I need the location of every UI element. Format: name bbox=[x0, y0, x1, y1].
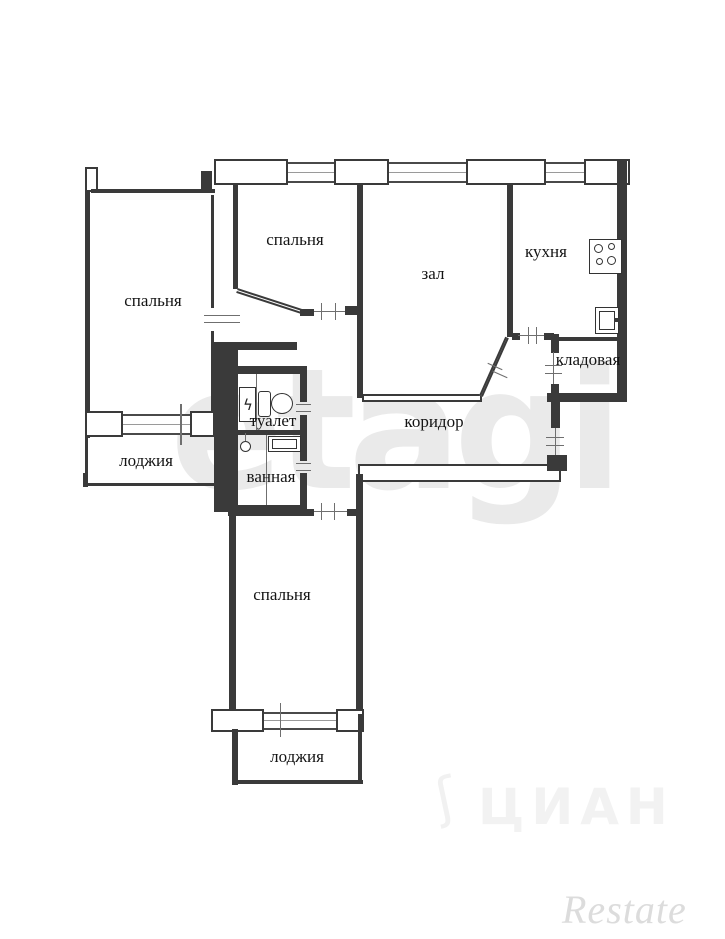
wall bbox=[356, 474, 363, 714]
entrance-door-sill bbox=[555, 428, 556, 458]
wall bbox=[232, 729, 238, 785]
wall bbox=[547, 455, 567, 471]
door-tick bbox=[536, 327, 537, 344]
wall-pier bbox=[85, 411, 123, 437]
room-label-bedroom-top-left: спальня bbox=[124, 291, 182, 311]
window bbox=[389, 162, 466, 183]
door-tick bbox=[321, 303, 322, 320]
room-label-kitchen: кухня bbox=[525, 242, 567, 262]
washbasin-icon bbox=[240, 441, 251, 452]
wall bbox=[300, 309, 314, 316]
stove-burner-icon bbox=[607, 256, 616, 265]
wall bbox=[556, 337, 618, 341]
door-opening bbox=[204, 322, 240, 323]
window bbox=[288, 162, 334, 183]
door-tick bbox=[335, 303, 336, 320]
room-label-loggia-left: лоджия bbox=[119, 451, 173, 471]
wall-pier bbox=[466, 159, 546, 185]
bathtub-icon bbox=[272, 439, 297, 449]
door-sill bbox=[553, 352, 554, 385]
wall bbox=[507, 184, 513, 337]
door-tick bbox=[296, 470, 311, 471]
stove-icon bbox=[589, 239, 622, 274]
kitchen-sink-icon bbox=[599, 311, 615, 330]
stove-burner-icon bbox=[594, 244, 603, 253]
watermark-cian: ЦИАН bbox=[478, 778, 675, 836]
watermark-bird-icon: ʃ bbox=[430, 765, 461, 830]
door-sill bbox=[314, 311, 347, 312]
wall bbox=[232, 780, 363, 784]
wall bbox=[358, 464, 561, 482]
window bbox=[546, 162, 584, 183]
stove-burner-icon bbox=[608, 243, 615, 250]
room-label-corridor: коридор bbox=[404, 412, 463, 432]
door-tick bbox=[334, 503, 335, 520]
wall bbox=[228, 509, 314, 516]
wall bbox=[300, 435, 307, 461]
wall bbox=[551, 400, 560, 428]
wall bbox=[300, 374, 307, 402]
door-tick bbox=[545, 373, 562, 374]
wall bbox=[211, 195, 214, 308]
wall bbox=[547, 393, 627, 402]
stove-burner-icon bbox=[596, 258, 603, 265]
wall bbox=[201, 171, 212, 191]
wall-pier bbox=[190, 411, 215, 437]
door-opening bbox=[204, 315, 240, 316]
wall bbox=[85, 192, 90, 438]
room-label-bedroom-top-middle: спальня bbox=[266, 230, 324, 250]
watermark-restate: Restate bbox=[562, 886, 687, 933]
wall bbox=[233, 366, 307, 374]
wall bbox=[233, 184, 238, 289]
wall-pier bbox=[214, 159, 288, 185]
wall bbox=[362, 394, 482, 402]
wall bbox=[233, 342, 297, 350]
door-tick bbox=[296, 404, 311, 405]
door-tick bbox=[546, 437, 564, 438]
door-tick bbox=[321, 503, 322, 520]
room-label-hall: зал bbox=[422, 264, 445, 284]
wall-pier bbox=[334, 159, 389, 185]
wall bbox=[229, 516, 236, 712]
room-label-loggia-bottom: лоджия bbox=[270, 747, 324, 767]
wall bbox=[88, 483, 216, 486]
wall bbox=[358, 714, 362, 784]
door-tick bbox=[546, 445, 564, 446]
wall bbox=[357, 184, 363, 398]
room-label-storage: кладовая bbox=[556, 350, 621, 370]
faucet-icon bbox=[614, 318, 619, 322]
wall bbox=[91, 189, 215, 193]
door-tick bbox=[296, 411, 311, 412]
room-label-toilet: туалет bbox=[250, 411, 297, 431]
room-label-bathroom: ванная bbox=[247, 467, 296, 487]
balcony-door-tick bbox=[180, 404, 182, 445]
door-leaf bbox=[236, 288, 308, 316]
door-sill bbox=[314, 511, 347, 512]
window bbox=[264, 712, 336, 730]
floor-plan: etagi ʃ ЦИАН Restate bbox=[0, 0, 725, 939]
door-sill bbox=[518, 335, 546, 336]
room-label-bedroom-bottom: спальня bbox=[253, 585, 311, 605]
washbasin-icon bbox=[245, 433, 246, 441]
balcony-door-tick bbox=[280, 703, 281, 737]
door-tick bbox=[528, 327, 529, 344]
door-tick bbox=[296, 463, 311, 464]
